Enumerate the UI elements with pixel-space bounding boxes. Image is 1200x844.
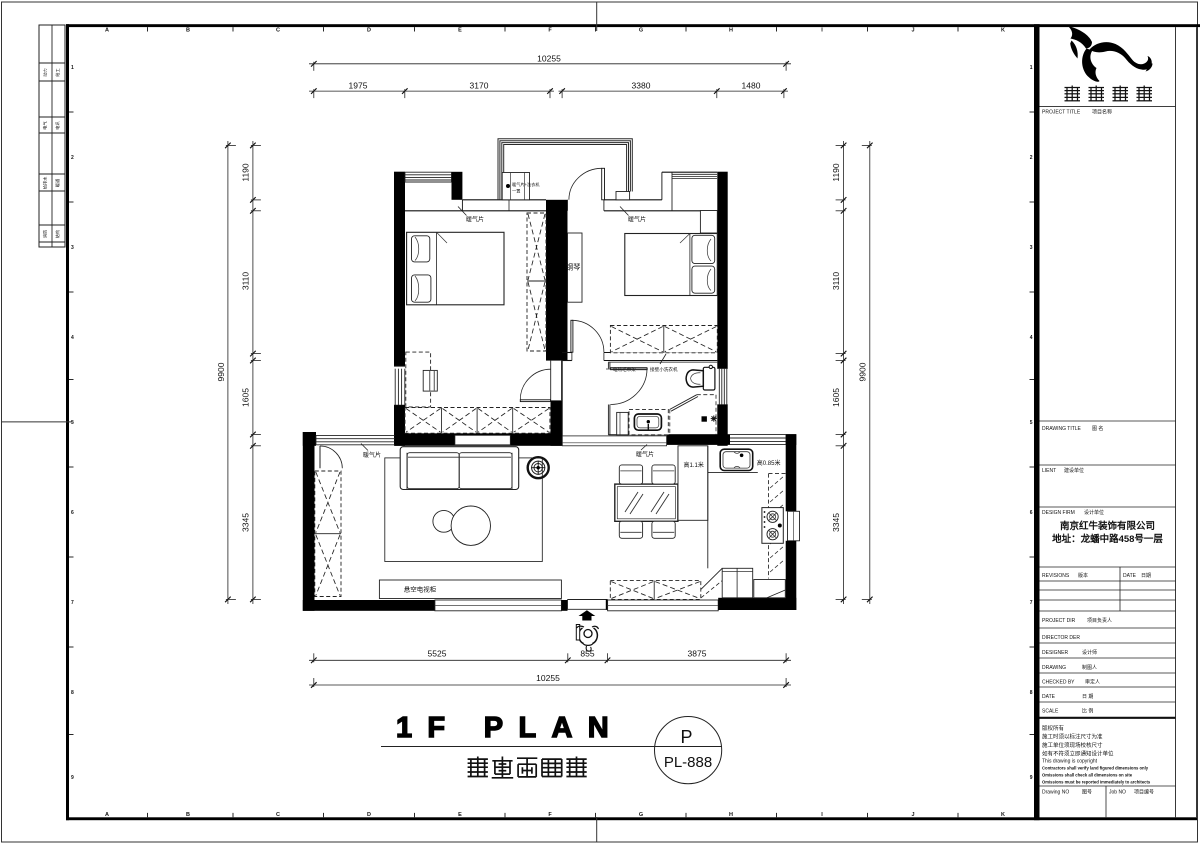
svg-text:3: 3 xyxy=(71,245,74,251)
svg-text:暖气片+洗衣机: 暖气片+洗衣机 xyxy=(512,181,540,188)
svg-text:Job NO: Job NO xyxy=(1109,790,1126,796)
svg-text:This drawing is copyright: This drawing is copyright xyxy=(1042,759,1098,765)
svg-text:D: D xyxy=(367,28,371,34)
svg-text:3170: 3170 xyxy=(470,81,489,91)
svg-text:结构: 结构 xyxy=(54,230,61,238)
svg-text:855: 855 xyxy=(580,649,594,659)
svg-text:悬空电视柜: 悬空电视柜 xyxy=(404,585,437,594)
svg-text:C: C xyxy=(276,812,280,818)
svg-text:DATE: DATE xyxy=(1042,694,1056,700)
svg-text:接壁小洗衣机: 接壁小洗衣机 xyxy=(650,366,678,373)
svg-text:Omissions shall check all dime: Omissions shall check all dimensions on … xyxy=(1042,773,1133,778)
svg-text:G: G xyxy=(639,812,643,818)
svg-text:给工: 给工 xyxy=(54,68,61,76)
svg-text:PROJECT DIR: PROJECT DIR xyxy=(1042,618,1076,624)
svg-text:5: 5 xyxy=(1030,420,1033,426)
svg-text:H: H xyxy=(729,28,733,34)
svg-text:8: 8 xyxy=(71,690,74,696)
svg-text:CHECKED BY: CHECKED BY xyxy=(1042,680,1075,686)
svg-text:消防: 消防 xyxy=(42,230,49,238)
svg-text:G: G xyxy=(639,28,643,34)
svg-text:2: 2 xyxy=(1030,155,1033,161)
svg-text:J: J xyxy=(911,812,914,818)
svg-text:5525: 5525 xyxy=(428,649,447,659)
svg-text:DRAWING: DRAWING xyxy=(1042,665,1066,671)
svg-text:1190: 1190 xyxy=(241,163,251,182)
svg-text:3345: 3345 xyxy=(831,513,841,532)
svg-text:10255: 10255 xyxy=(537,54,561,64)
svg-text:图 名: 图 名 xyxy=(1092,425,1103,432)
svg-text:版本: 版本 xyxy=(1078,572,1088,579)
svg-text:DIRECTOR DER: DIRECTOR DER xyxy=(1042,635,1080,641)
svg-text:1: 1 xyxy=(1030,65,1033,71)
svg-text:PL-888: PL-888 xyxy=(664,754,712,771)
svg-text:日 期: 日 期 xyxy=(1082,694,1093,700)
svg-text:1: 1 xyxy=(71,65,74,71)
svg-text:版权所有: 版权所有 xyxy=(1042,724,1065,732)
svg-text:7: 7 xyxy=(1030,600,1033,606)
svg-text:K: K xyxy=(1001,28,1005,34)
svg-text:DATE: DATE xyxy=(1123,573,1137,579)
svg-text:8: 8 xyxy=(1030,690,1033,696)
svg-text:PROJECT TITLE: PROJECT TITLE xyxy=(1042,110,1081,116)
svg-text:E: E xyxy=(458,28,462,34)
svg-text:日期: 日期 xyxy=(1141,573,1151,579)
svg-text:C: C xyxy=(276,28,280,34)
svg-text:4: 4 xyxy=(1030,335,1033,341)
svg-text:暖气片: 暖气片 xyxy=(363,451,381,459)
svg-text:Contractors shall verify land: Contractors shall verify land figured di… xyxy=(1042,766,1149,771)
svg-text:如有不符须立即通知设计单位: 如有不符须立即通知设计单位 xyxy=(1042,750,1114,758)
svg-text:E: E xyxy=(458,812,462,818)
svg-text:图号: 图号 xyxy=(1082,790,1092,796)
svg-text:3110: 3110 xyxy=(241,272,251,291)
svg-text:SCALE: SCALE xyxy=(1042,709,1059,715)
svg-text:施工单位须现场校核尺寸: 施工单位须现场校核尺寸 xyxy=(1042,741,1103,749)
svg-text:DRAWING TITLE: DRAWING TITLE xyxy=(1042,426,1082,432)
svg-text:4: 4 xyxy=(71,335,74,341)
svg-text:暖通: 暖通 xyxy=(54,178,61,187)
svg-text:审定人: 审定人 xyxy=(1085,679,1100,686)
svg-text:制图人: 制图人 xyxy=(1082,664,1097,671)
svg-text:DESIGN FIRM: DESIGN FIRM xyxy=(1042,510,1075,516)
svg-text:暖气片: 暖气片 xyxy=(466,216,484,224)
svg-text:设计师: 设计师 xyxy=(1082,649,1097,656)
svg-text:6: 6 xyxy=(71,510,74,516)
svg-text:1480: 1480 xyxy=(742,81,761,91)
svg-text:B: B xyxy=(186,28,190,34)
svg-text:D: D xyxy=(367,812,371,818)
svg-text:地址：龙蟠中路458号一层: 地址：龙蟠中路458号一层 xyxy=(1052,533,1163,545)
svg-text:建设单位: 建设单位 xyxy=(1064,467,1084,474)
svg-text:Omissions must be reported imm: Omissions must be reported immediately t… xyxy=(1042,780,1151,785)
svg-text:高0.85米: 高0.85米 xyxy=(757,459,781,467)
svg-text:动力: 动力 xyxy=(42,68,49,76)
svg-text:K: K xyxy=(1001,812,1005,818)
svg-text:Drawing NO: Drawing NO xyxy=(1042,790,1069,796)
svg-text:DESIGNER: DESIGNER xyxy=(1042,650,1069,656)
svg-text:3875: 3875 xyxy=(688,649,707,659)
svg-text:2: 2 xyxy=(71,155,74,161)
svg-text:设计单位: 设计单位 xyxy=(1084,509,1104,516)
svg-text:6: 6 xyxy=(1030,510,1033,516)
svg-text:9900: 9900 xyxy=(216,362,226,381)
svg-text:电讯: 电讯 xyxy=(54,121,61,130)
svg-text:3380: 3380 xyxy=(632,81,651,91)
svg-text:高1.1米: 高1.1米 xyxy=(684,461,704,469)
svg-text:1605: 1605 xyxy=(831,388,841,407)
svg-text:REVISIONS: REVISIONS xyxy=(1042,573,1070,579)
svg-text:9900: 9900 xyxy=(858,362,868,381)
svg-text:7: 7 xyxy=(71,600,74,606)
svg-text:电气: 电气 xyxy=(42,121,48,130)
svg-text:H: H xyxy=(729,812,733,818)
svg-text:暖气片: 暖气片 xyxy=(628,216,646,224)
svg-text:LIENT: LIENT xyxy=(1042,468,1056,474)
svg-text:项目名称: 项目名称 xyxy=(1092,109,1112,116)
svg-text:9: 9 xyxy=(1030,775,1033,781)
svg-text:3: 3 xyxy=(1030,245,1033,251)
svg-text:1F PLAN: 1F PLAN xyxy=(396,712,624,744)
svg-text:给排水: 给排水 xyxy=(42,176,49,189)
svg-text:3110: 3110 xyxy=(831,272,841,291)
svg-text:施工时须以标注尺寸为准: 施工时须以标注尺寸为准 xyxy=(1042,733,1103,741)
svg-text:B: B xyxy=(186,812,190,818)
svg-text:电热毛巾架: 电热毛巾架 xyxy=(613,366,636,373)
svg-text:3345: 3345 xyxy=(241,513,251,532)
svg-text:9: 9 xyxy=(71,775,74,781)
svg-text:比 例: 比 例 xyxy=(1082,708,1093,715)
svg-text:1190: 1190 xyxy=(831,163,841,182)
svg-text:1605: 1605 xyxy=(241,388,251,407)
svg-text:项目编号: 项目编号 xyxy=(1134,789,1154,796)
svg-text:钢琴: 钢琴 xyxy=(566,263,580,272)
svg-text:J: J xyxy=(911,28,914,34)
svg-text:P: P xyxy=(680,727,692,747)
svg-text:A: A xyxy=(105,28,109,34)
svg-text:南京红牛装饰有限公司: 南京红牛装饰有限公司 xyxy=(1060,520,1155,532)
svg-text:5: 5 xyxy=(71,420,74,426)
svg-text:1975: 1975 xyxy=(349,81,368,91)
svg-text:A: A xyxy=(105,812,109,818)
svg-text:10255: 10255 xyxy=(536,673,560,683)
svg-text:项目负责人: 项目负责人 xyxy=(1087,617,1112,624)
svg-text:暖气片: 暖气片 xyxy=(636,451,654,459)
